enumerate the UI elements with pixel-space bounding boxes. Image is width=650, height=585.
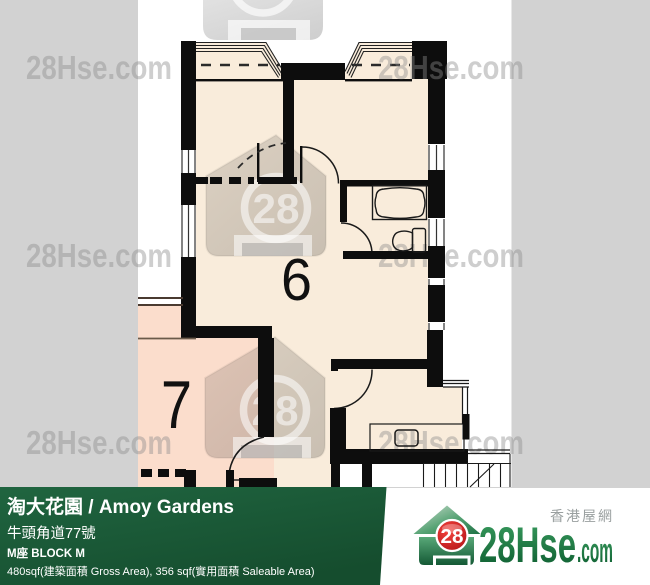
svg-text:480sqf(建築面積 Gross Area), 356 s: 480sqf(建築面積 Gross Area), 356 sqf(實用面積 Sa… (7, 564, 315, 578)
svg-text:香港屋網: 香港屋網 (550, 508, 614, 524)
svg-text:牛頭角道77號: 牛頭角道77號 (7, 525, 96, 542)
svg-text:28Hse.com: 28Hse.com (378, 49, 524, 86)
svg-text:28Hse.com: 28Hse.com (26, 237, 172, 274)
svg-text:6: 6 (281, 247, 312, 313)
svg-text:淘大花園 / Amoy Gardens: 淘大花園 / Amoy Gardens (7, 495, 234, 518)
svg-text:28Hse.com: 28Hse.com (26, 49, 172, 86)
svg-text:.com: .com (577, 532, 613, 570)
svg-text:M座 BLOCK M: M座 BLOCK M (7, 546, 85, 560)
svg-text:28Hse.com: 28Hse.com (26, 424, 172, 461)
svg-text:28Hse: 28Hse (479, 517, 576, 573)
svg-text:7: 7 (161, 367, 192, 443)
svg-text:28: 28 (441, 526, 464, 548)
